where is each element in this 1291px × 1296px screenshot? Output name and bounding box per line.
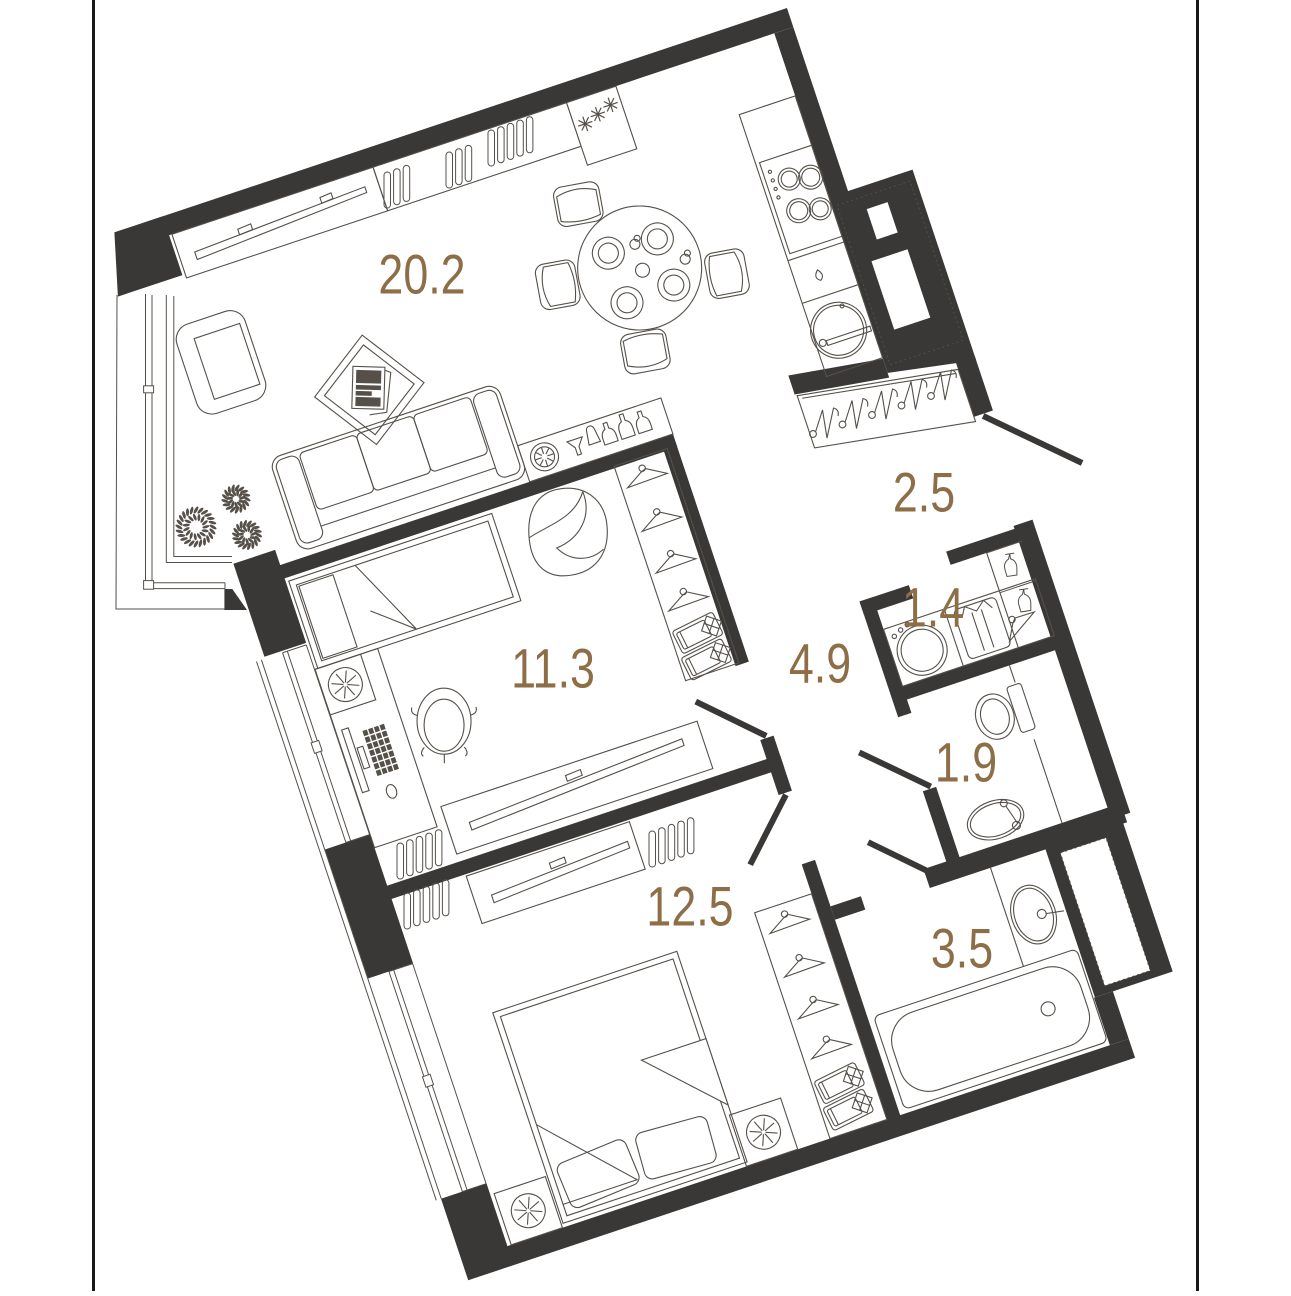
- svg-text:3.5: 3.5: [931, 917, 993, 980]
- svg-text:2.5: 2.5: [893, 461, 955, 524]
- svg-text:20.2: 20.2: [378, 243, 465, 306]
- svg-text:12.5: 12.5: [646, 875, 733, 938]
- svg-text:1.9: 1.9: [935, 731, 997, 794]
- svg-text:1.4: 1.4: [902, 576, 964, 639]
- svg-text:11.3: 11.3: [511, 637, 595, 700]
- svg-text:4.9: 4.9: [789, 632, 851, 695]
